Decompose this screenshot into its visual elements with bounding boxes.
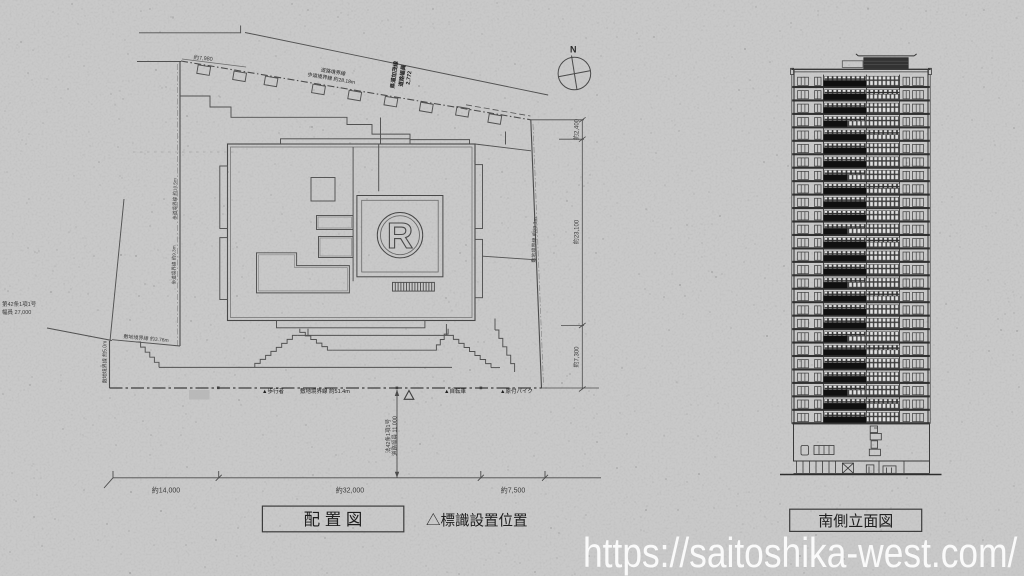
svg-text:法42条1項1号: 法42条1項1号 [384, 418, 392, 453]
svg-text:敷地境界線 約51.4m: 敷地境界線 約51.4m [300, 387, 350, 395]
svg-text:▲原付バイク: ▲原付バイク [500, 387, 533, 395]
svg-text:歩道境界線 約9.3m: 歩道境界線 約9.3m [171, 245, 178, 284]
svg-text:約2,400: 約2,400 [573, 118, 581, 140]
svg-text:約14,000: 約14,000 [152, 486, 181, 495]
svg-text:歩道境界線 約10.5m: 歩道境界線 約10.5m [172, 178, 179, 220]
svg-text:道路幅員 11,000: 道路幅員 11,000 [391, 416, 399, 456]
svg-text:約7,300: 約7,300 [573, 346, 581, 368]
svg-text:第42条1項1号: 第42条1項1号 [2, 300, 37, 308]
svg-text:幅員 27,000: 幅員 27,000 [2, 308, 31, 316]
svg-text:約32,000: 約32,000 [336, 486, 365, 495]
svg-text:南側立面図: 南側立面図 [818, 513, 893, 530]
svg-text:▲自転車: ▲自転車 [444, 387, 466, 395]
svg-text:N: N [570, 45, 577, 55]
svg-text:配 置 図: 配 置 図 [304, 511, 363, 529]
svg-text:R: R [387, 215, 413, 256]
svg-text:▲歩行者: ▲歩行者 [262, 387, 284, 395]
svg-text:約23,100: 約23,100 [573, 219, 581, 244]
svg-text:△標識設置位置: △標識設置位置 [426, 513, 528, 530]
svg-text:敷地境界線 約5.0m: 敷地境界線 約5.0m [102, 341, 109, 384]
svg-text:約7,500: 約7,500 [501, 486, 526, 495]
